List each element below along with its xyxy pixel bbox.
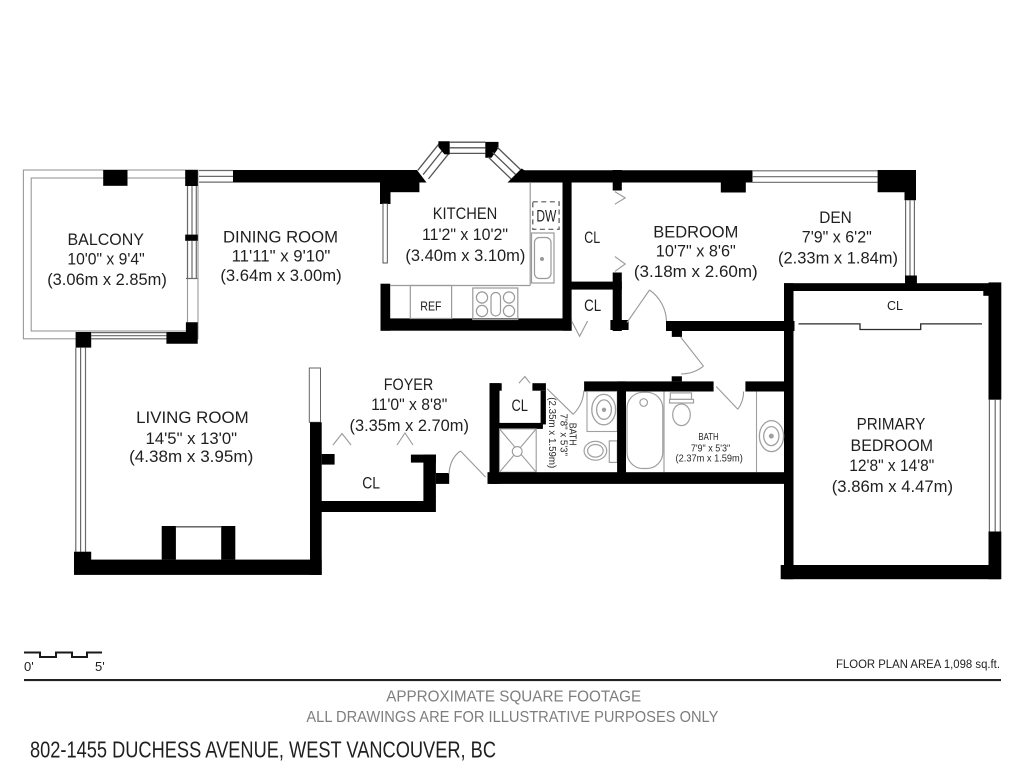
svg-text:(3.06m x 2.85m): (3.06m x 2.85m) xyxy=(47,270,167,289)
svg-text:(2.35m x 1.59m): (2.35m x 1.59m) xyxy=(546,397,558,468)
svg-text:(3.64m x 3.00m): (3.64m x 3.00m) xyxy=(220,266,341,285)
svg-text:14'5" x 13'0": 14'5" x 13'0" xyxy=(146,429,238,448)
svg-text:11'11" x 9'10": 11'11" x 9'10" xyxy=(232,247,331,266)
svg-text:DINING ROOM: DINING ROOM xyxy=(223,228,338,247)
svg-text:(3.18m x 2.60m): (3.18m x 2.60m) xyxy=(634,262,758,281)
svg-text:10'7" x 8'6": 10'7" x 8'6" xyxy=(656,242,736,261)
svg-text:BEDROOM: BEDROOM xyxy=(851,436,934,455)
svg-text:7'8" x 5'3": 7'8" x 5'3" xyxy=(558,414,570,457)
svg-text:DEN: DEN xyxy=(819,208,852,227)
svg-text:BATH: BATH xyxy=(698,431,718,443)
svg-text:(3.35m x 2.70m): (3.35m x 2.70m) xyxy=(350,416,469,435)
svg-text:11'0" x 8'8": 11'0" x 8'8" xyxy=(371,395,447,414)
svg-text:FLOOR PLAN AREA 1,098 sq.ft.: FLOOR PLAN AREA 1,098 sq.ft. xyxy=(836,659,1000,671)
svg-text:(2.33m x 1.84m): (2.33m x 1.84m) xyxy=(778,249,898,268)
svg-text:CL: CL xyxy=(511,396,528,415)
svg-text:FOYER: FOYER xyxy=(384,375,434,394)
svg-text:12'8" x 14'8": 12'8" x 14'8" xyxy=(849,456,934,475)
svg-text:ALL DRAWINGS ARE FOR ILLUSTRAT: ALL DRAWINGS ARE FOR ILLUSTRATIVE PURPOS… xyxy=(306,709,718,726)
svg-text:7'9" x 6'2": 7'9" x 6'2" xyxy=(802,228,872,247)
svg-text:0': 0' xyxy=(24,659,34,674)
svg-text:BEDROOM: BEDROOM xyxy=(653,223,738,242)
svg-text:(3.40m x 3.10m): (3.40m x 3.10m) xyxy=(405,246,525,265)
svg-text:BALCONY: BALCONY xyxy=(68,230,144,249)
svg-text:802-1455 DUCHESS AVENUE, WEST: 802-1455 DUCHESS AVENUE, WEST VANCOUVER,… xyxy=(30,737,496,763)
svg-text:10'0" x 9'4": 10'0" x 9'4" xyxy=(67,250,144,269)
svg-text:CL: CL xyxy=(887,298,903,313)
svg-text:APPROXIMATE SQUARE FOOTAGE: APPROXIMATE SQUARE FOOTAGE xyxy=(386,689,641,706)
svg-text:DW: DW xyxy=(536,207,556,226)
svg-text:(3.86m x 4.47m): (3.86m x 4.47m) xyxy=(832,477,953,496)
svg-text:PRIMARY: PRIMARY xyxy=(857,415,926,434)
svg-text:11'2" x 10'2": 11'2" x 10'2" xyxy=(422,225,508,244)
svg-text:KITCHEN: KITCHEN xyxy=(433,204,498,223)
svg-text:CL: CL xyxy=(584,228,600,247)
svg-text:(4.38m x 3.95m): (4.38m x 3.95m) xyxy=(129,447,253,466)
svg-text:CL: CL xyxy=(584,296,601,315)
svg-text:5': 5' xyxy=(95,659,105,674)
svg-text:CL: CL xyxy=(362,474,380,493)
svg-text:(2.37m x 1.59m): (2.37m x 1.59m) xyxy=(676,453,743,465)
svg-text:REF: REF xyxy=(420,299,441,314)
svg-text:LIVING ROOM: LIVING ROOM xyxy=(136,408,249,427)
